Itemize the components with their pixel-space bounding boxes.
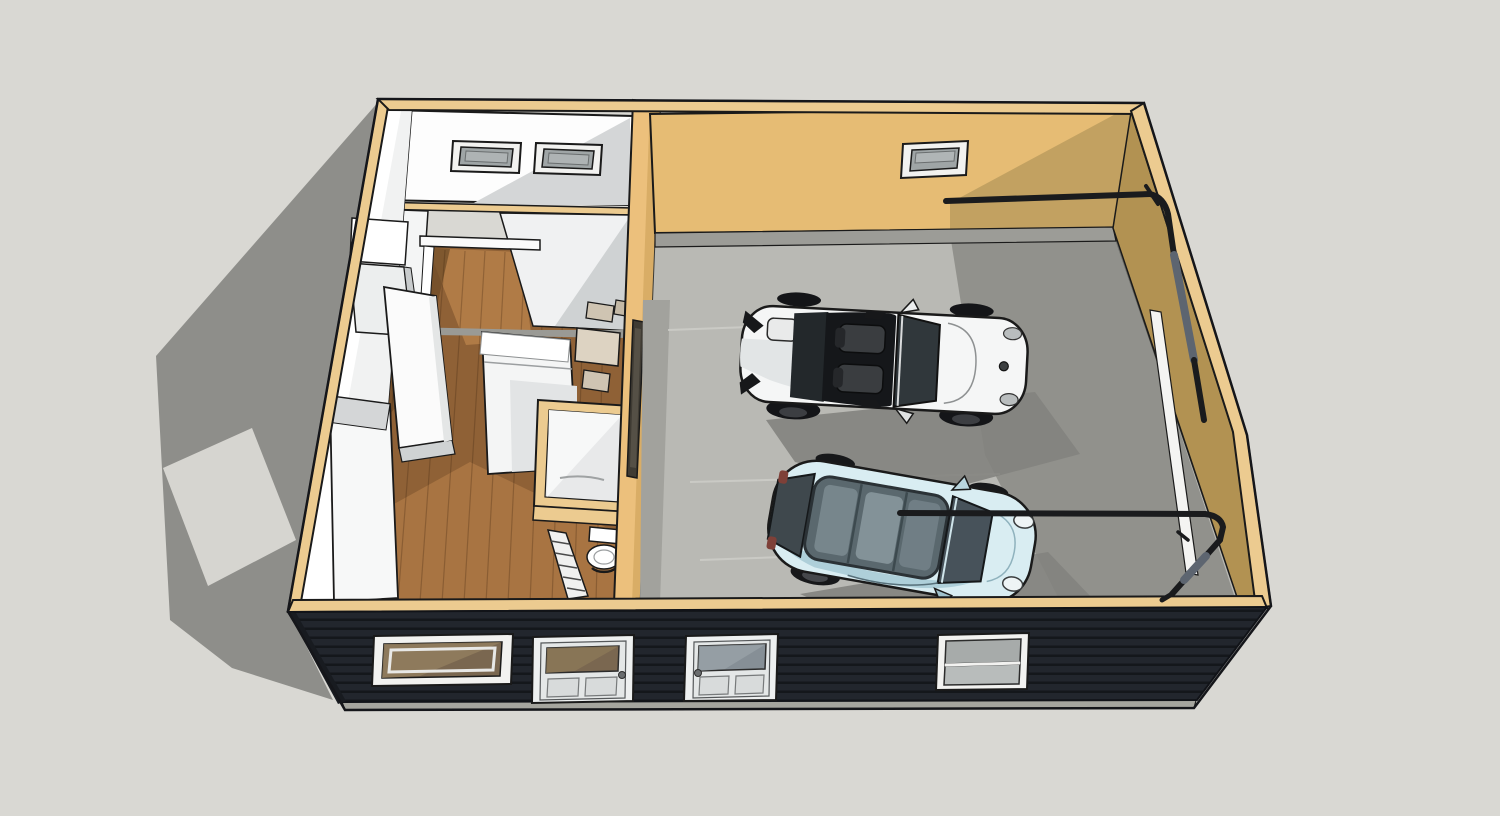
white-car-headrest-left bbox=[835, 327, 846, 347]
white-car-headlight-left bbox=[1003, 327, 1022, 340]
facade-door-left[interactable]: Apartment entry door bbox=[532, 635, 634, 703]
white-car-seat-left bbox=[838, 324, 885, 354]
white-car-seat-right bbox=[836, 364, 883, 394]
door-right-knob bbox=[695, 670, 702, 677]
garage-window[interactable]: Garage back wall window bbox=[901, 141, 968, 178]
garage-back-wall[interactable]: Garage back wall Garage back wall window… bbox=[650, 108, 1140, 247]
door-left-knob bbox=[619, 672, 626, 679]
apartment-back-wall[interactable]: Apartment back wall Transom window 1 Tra… bbox=[381, 110, 633, 205]
front-facade[interactable]: Front exterior wall, dark horizontal sid… bbox=[288, 607, 1267, 710]
facade-window-left[interactable]: Front window (apartment) bbox=[372, 634, 513, 686]
white-car-headrest-right bbox=[832, 367, 843, 387]
transom-window-2[interactable]: Transom window 2 bbox=[534, 143, 602, 175]
3d-viewport[interactable]: Ground plane Building shadow on ground L… bbox=[0, 0, 1500, 816]
transom-window-1[interactable]: Transom window 1 bbox=[451, 141, 521, 173]
facade-door-right[interactable]: Garage entry door bbox=[684, 634, 778, 701]
facade-window-right[interactable]: Front window (garage) bbox=[936, 633, 1029, 690]
white-car-headlight-right bbox=[1000, 393, 1019, 406]
wardrobe[interactable]: Wardrobe cabinet bbox=[327, 396, 398, 602]
white-car-badge bbox=[999, 362, 1008, 371]
